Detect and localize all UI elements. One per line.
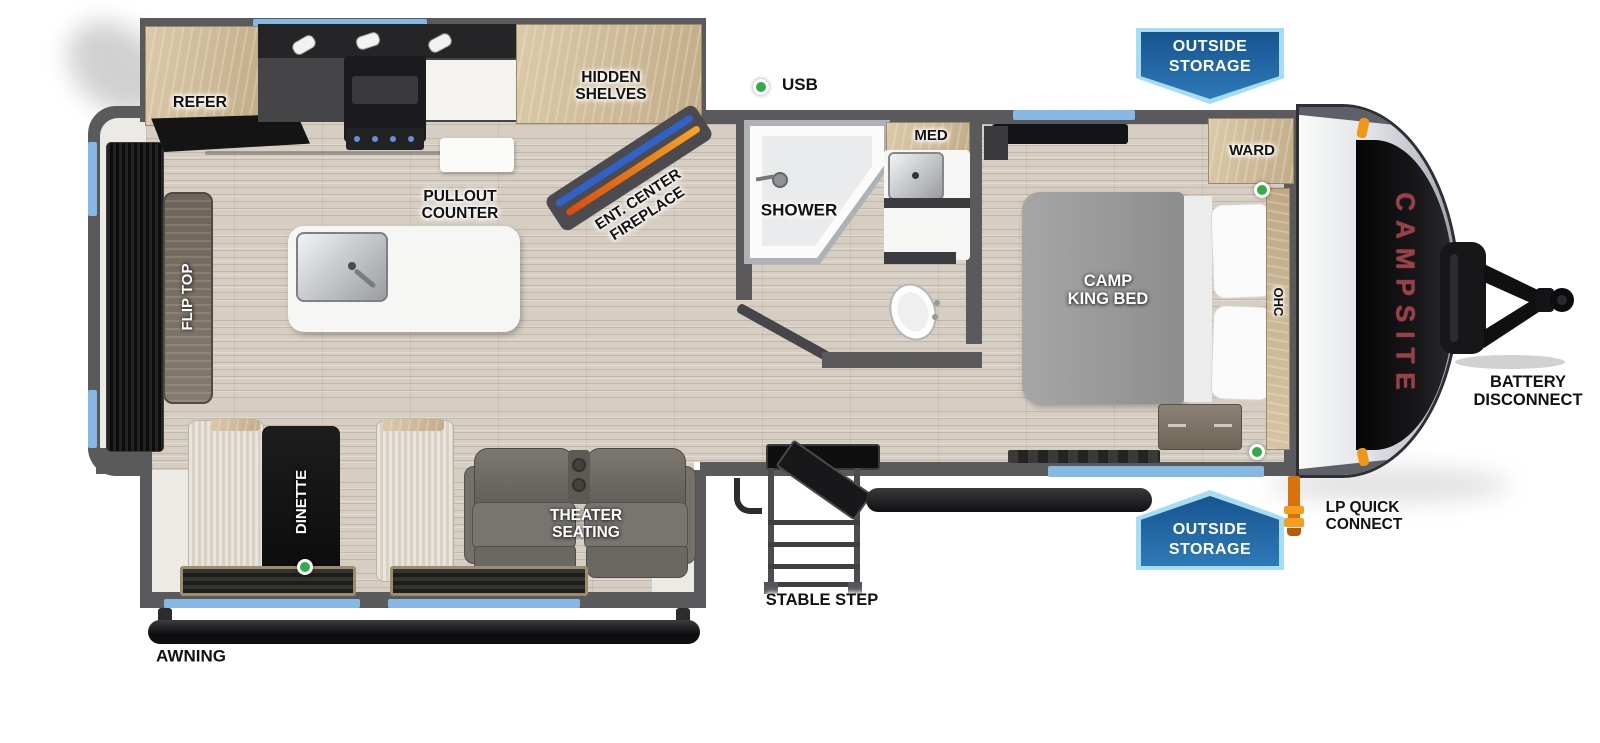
hitch-ball-center	[1557, 295, 1567, 305]
underbody-storage-tube	[866, 488, 1152, 512]
bathroom-wall	[822, 352, 982, 368]
shower-label: SHOWER	[761, 202, 838, 221]
cupholder	[572, 458, 586, 472]
window-strip	[388, 599, 580, 608]
hitch	[1438, 230, 1578, 370]
lp-fitting	[1284, 518, 1304, 527]
pillow	[1210, 305, 1273, 401]
rear-sofa	[106, 142, 164, 452]
theater-seating-label: THEATER SEATING	[550, 507, 622, 541]
burner-knob	[372, 136, 378, 142]
rv-floorplan-diagram: FLIP TOP REFER HIDDEN SHELVES ENT. CENTE…	[0, 0, 1600, 743]
flip-top-label: FLIP TOP	[180, 264, 197, 331]
dinette-label: DINETTE	[294, 470, 311, 534]
battery-disconnect-label: BATTERY DISCONNECT	[1473, 373, 1582, 409]
oven-window	[352, 76, 418, 104]
banner-text: OUTSIDE STORAGE	[1136, 520, 1284, 560]
bath-sink-drain	[912, 172, 919, 179]
burner-knob	[408, 136, 414, 142]
slide-floor-mat	[390, 566, 588, 596]
vanity-counter-edge	[884, 252, 956, 264]
lp-fitting	[1284, 506, 1304, 514]
ward-marker-dot	[1254, 182, 1270, 198]
dinette-bench-cap	[382, 419, 444, 431]
dinette-bench-cap	[210, 419, 260, 431]
burner-knob	[354, 136, 360, 142]
hitch-shadow	[1455, 355, 1565, 369]
toilet-lid	[893, 288, 934, 335]
pullout-counter	[440, 138, 514, 172]
stable-step-label: STABLE STEP	[766, 591, 878, 609]
grab-handle	[734, 478, 762, 514]
dinette-marker-dot	[297, 559, 313, 575]
bedroom-tv	[992, 124, 1128, 144]
bedroom-corner-shelf	[984, 126, 1008, 160]
cupholder	[572, 478, 586, 492]
outside-storage-banner-bottom: OUTSIDE STORAGE	[1136, 490, 1284, 570]
slide-floor-mat	[180, 566, 356, 596]
window-strip	[88, 390, 97, 448]
hidden-shelves-label: HIDDEN SHELVES	[575, 69, 646, 103]
theater-footrest	[586, 546, 688, 578]
hitch-coupler	[1440, 242, 1486, 354]
theater-backrest	[586, 448, 686, 506]
refer-label: REFER	[173, 94, 227, 112]
kitchen-counter-white	[424, 60, 518, 120]
usb-marker-dot	[753, 79, 769, 95]
bed-foot-dresser	[1158, 404, 1242, 450]
pillow	[1210, 203, 1273, 299]
bedroom-floor-mat	[1008, 450, 1160, 463]
toilet-hinge	[932, 314, 938, 320]
ladder-rung	[768, 520, 860, 525]
bedroom-marker-dot	[1249, 444, 1265, 460]
campsite-graphic-text: CAMPSITE	[1390, 192, 1421, 398]
cap-trim-streak	[1296, 104, 1460, 132]
ward-label: WARD	[1229, 143, 1275, 160]
usb-label: USB	[782, 76, 818, 95]
window-strip	[1013, 110, 1135, 120]
awning-tube	[148, 620, 700, 644]
dresser-handle	[1168, 424, 1186, 427]
hitch-beam	[1484, 294, 1542, 348]
theater-backrest	[474, 448, 574, 506]
burner-knob	[390, 136, 396, 142]
bed-sheet	[1184, 196, 1212, 402]
lp-quick-connect-label: LP QUICK CONNECT	[1326, 499, 1403, 533]
ladder-rung	[768, 582, 860, 587]
med-label: MED	[914, 128, 947, 145]
pullout-counter-label: PULLOUT COUNTER	[422, 188, 499, 222]
ohc-label: OHC	[1271, 288, 1285, 317]
ohc-cabinet	[1266, 188, 1290, 450]
awning-label: AWNING	[156, 648, 226, 667]
hitch-coupler-inner	[1450, 254, 1458, 342]
outside-storage-banner-top: OUTSIDE STORAGE	[1136, 28, 1284, 104]
island-sink	[296, 232, 388, 302]
dinette-bench	[376, 420, 454, 582]
window-strip	[88, 142, 97, 216]
shower-head	[772, 172, 788, 188]
dresser-handle	[1214, 424, 1232, 427]
vanity-counter-edge	[884, 198, 970, 208]
living-slideout-wall	[140, 470, 152, 608]
window-strip	[1048, 466, 1264, 477]
dinette-bench	[188, 420, 264, 582]
lp-quick-connect-pipe	[1288, 476, 1300, 522]
window-strip	[164, 599, 360, 608]
banner-text: OUTSIDE STORAGE	[1136, 37, 1284, 77]
camp-king-bed-label: CAMP KING BED	[1068, 272, 1149, 308]
ladder-rung	[768, 542, 860, 547]
toilet-hinge	[934, 300, 940, 306]
ladder-rung	[768, 564, 860, 569]
lp-tip	[1287, 528, 1301, 536]
stable-step-ladder	[760, 460, 872, 596]
